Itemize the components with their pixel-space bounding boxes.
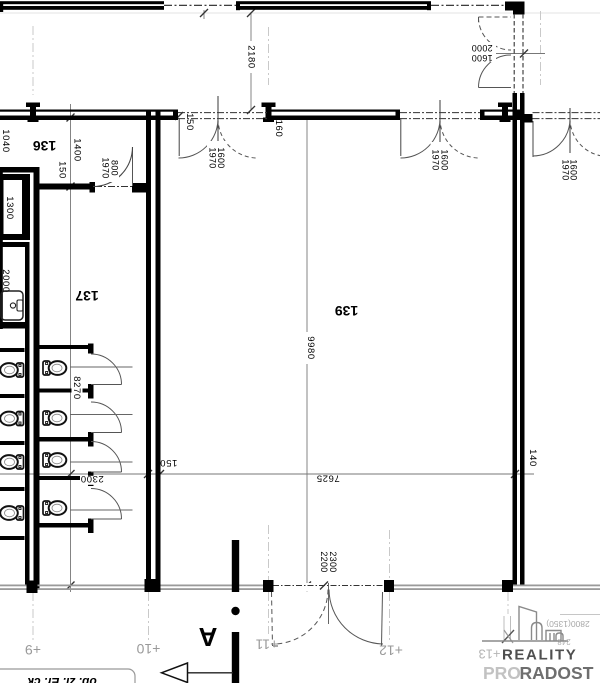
svg-text:1300: 1300 [4, 196, 15, 220]
svg-text:REALITY: REALITY [502, 647, 577, 664]
svg-text:1970: 1970 [101, 157, 111, 178]
svg-text:2000: 2000 [0, 269, 11, 293]
svg-text:+10: +10 [136, 641, 160, 657]
svg-text:7625: 7625 [316, 473, 340, 484]
svg-text:+11: +11 [255, 637, 278, 653]
svg-text:150: 150 [57, 161, 68, 179]
svg-text:1970: 1970 [208, 147, 218, 168]
svg-text:8270: 8270 [71, 376, 82, 400]
svg-text:+13: +13 [478, 647, 500, 662]
svg-text:1400: 1400 [72, 138, 83, 162]
svg-text:1970: 1970 [561, 159, 571, 180]
svg-text:+12: +12 [379, 643, 403, 659]
svg-text:9980: 9980 [305, 336, 316, 360]
svg-text:A: A [198, 622, 217, 652]
svg-text:137: 137 [75, 288, 99, 304]
svg-text:2000: 2000 [471, 43, 492, 53]
svg-text:2180: 2180 [246, 45, 257, 69]
svg-text:2300: 2300 [80, 473, 104, 484]
svg-text:+9: +9 [25, 642, 41, 658]
svg-text:1600: 1600 [471, 53, 492, 63]
svg-text:2800(1350): 2800(1350) [546, 619, 590, 629]
svg-text:139: 139 [335, 303, 359, 319]
svg-text:RADOST: RADOST [520, 663, 594, 683]
svg-text:140: 140 [527, 449, 538, 467]
svg-text:150: 150 [160, 457, 178, 468]
svg-text:136: 136 [33, 138, 57, 154]
svg-text:1040: 1040 [0, 129, 11, 153]
svg-text:2200: 2200 [319, 551, 329, 572]
svg-text:150: 150 [184, 113, 195, 131]
svg-text:1970: 1970 [431, 149, 441, 170]
svg-text:PRO: PRO [483, 663, 521, 683]
svg-text:160: 160 [273, 120, 284, 138]
svg-text:ob. zl. Er. ck: ob. zl. Er. ck [26, 675, 97, 683]
